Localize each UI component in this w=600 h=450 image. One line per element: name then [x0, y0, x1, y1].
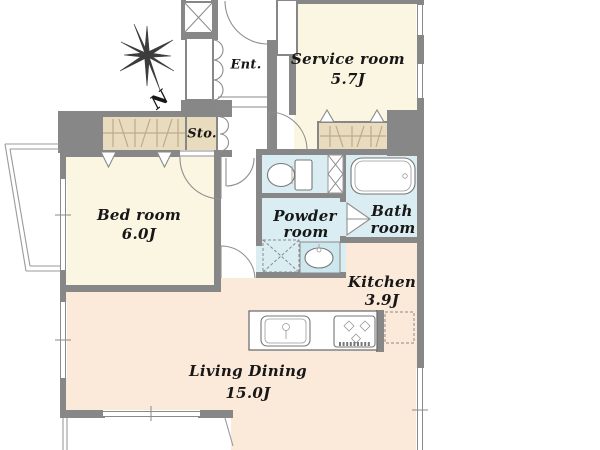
- bath-room-label-line1: Bath: [371, 202, 412, 220]
- kitchen-size: 3.9J: [365, 291, 399, 309]
- shoe-closet-folding-doors: [213, 40, 223, 100]
- compass-rose: [120, 24, 174, 90]
- window-service-east-2: [416, 64, 424, 98]
- storage-label: Sto.: [187, 127, 217, 142]
- service-room-label: Service room: [291, 50, 405, 68]
- west-balcony-outline: [5, 144, 60, 271]
- bathtub-icon: [351, 158, 415, 194]
- entrance-door-swing: [225, 1, 268, 44]
- washbasin-icon: [300, 242, 340, 273]
- toilet-door-swing: [226, 158, 254, 186]
- powder-room-label-line2: room: [284, 223, 329, 241]
- storage-folding-doors: [220, 117, 229, 151]
- service-room-size: 5.7J: [331, 70, 365, 88]
- bedroom-label: Bed room: [97, 206, 181, 224]
- shoe-closet: [186, 38, 213, 100]
- pipe-space: [328, 155, 343, 193]
- bedroom-size: 6.0J: [122, 225, 156, 243]
- south-balcony-outline: [63, 418, 233, 450]
- powder-room-door-swing: [221, 246, 255, 278]
- bath-room-label-line2: room: [371, 219, 416, 237]
- floor-plan: N Ent. Service room 5.7J Sto. Bed room 6…: [0, 0, 600, 450]
- living-dining-label: Living Dining: [189, 362, 307, 380]
- entrance-label: Ent.: [230, 58, 261, 73]
- kitchen-label: Kitchen: [348, 273, 416, 291]
- gas-stove-icon: [334, 316, 375, 347]
- living-dining-size: 15.0J: [225, 384, 270, 402]
- kitchen-sink-icon: [261, 316, 310, 346]
- kitchen-counter: [249, 311, 377, 350]
- pipe-duct: [277, 0, 297, 55]
- window-service-east-1: [416, 5, 424, 35]
